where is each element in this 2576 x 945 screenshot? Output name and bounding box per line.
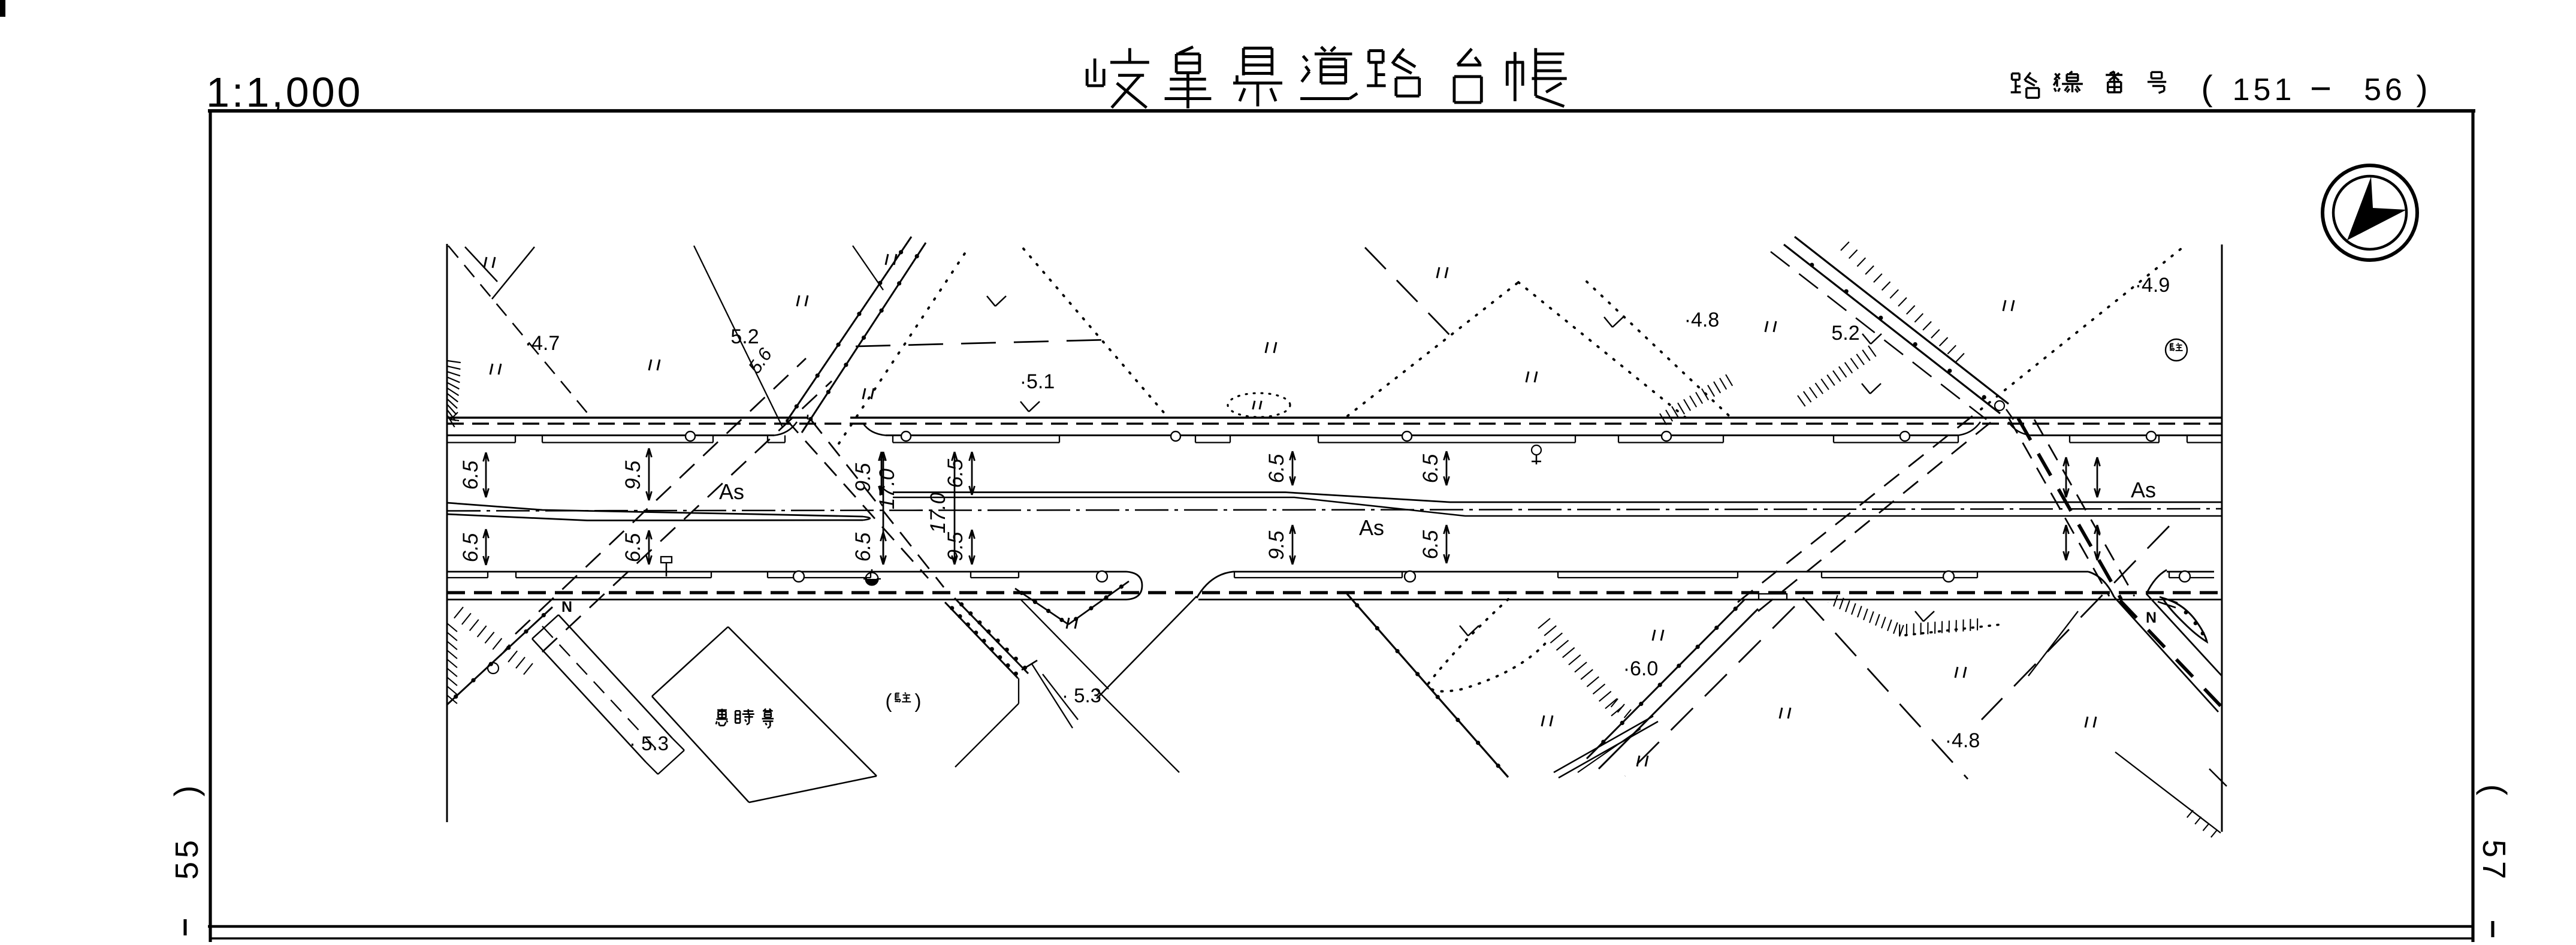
svg-text:·5.1: ·5.1 [1020,370,1055,393]
svg-text:55: 55 [169,837,205,880]
svg-text:(: ( [2476,784,2514,796]
svg-text:9.5: 9.5 [851,463,875,492]
svg-text:9.5: 9.5 [944,532,967,561]
svg-text:9.5: 9.5 [621,460,645,490]
svg-text:5.2: 5.2 [1831,322,1859,345]
svg-text:17.0: 17.0 [926,492,950,533]
svg-text:· 5.3: · 5.3 [1062,684,1101,707]
svg-text:6.5: 6.5 [1419,530,1442,559]
svg-text:As: As [2131,478,2156,502]
svg-text:N: N [561,599,572,615]
svg-text:57: 57 [2476,840,2512,883]
svg-text:6.5: 6.5 [1265,454,1288,483]
svg-text:·4.8: ·4.8 [1945,729,1980,752]
svg-text:56: 56 [2364,73,2406,107]
svg-text:N: N [2146,609,2157,626]
svg-text:151: 151 [2233,73,2296,107]
svg-text:·4.7: ·4.7 [525,332,560,355]
svg-text:): ) [915,690,922,712]
svg-text:1:1,000: 1:1,000 [206,69,363,116]
svg-text:9.5: 9.5 [1265,530,1288,560]
svg-text:(: ( [886,690,892,712]
svg-text:6.5: 6.5 [851,532,875,561]
svg-text:·4.9: ·4.9 [2135,274,2170,297]
svg-text:·6.0: ·6.0 [1623,657,1659,680]
svg-text:6.5: 6.5 [459,460,482,490]
svg-text:(: ( [2201,69,2212,108]
svg-text:· 5.3: · 5.3 [629,732,669,754]
svg-text:): ) [2416,69,2427,108]
svg-text:As: As [1359,515,1384,540]
svg-text:): ) [167,786,205,797]
svg-text:6.5: 6.5 [944,458,967,488]
svg-text:As: As [719,479,744,504]
svg-text:17.0: 17.0 [875,468,899,509]
svg-text:6.5: 6.5 [621,533,645,562]
svg-text:·4.8: ·4.8 [1684,309,1720,331]
svg-text:6.5: 6.5 [459,533,482,562]
svg-text:6.5: 6.5 [1419,454,1442,483]
